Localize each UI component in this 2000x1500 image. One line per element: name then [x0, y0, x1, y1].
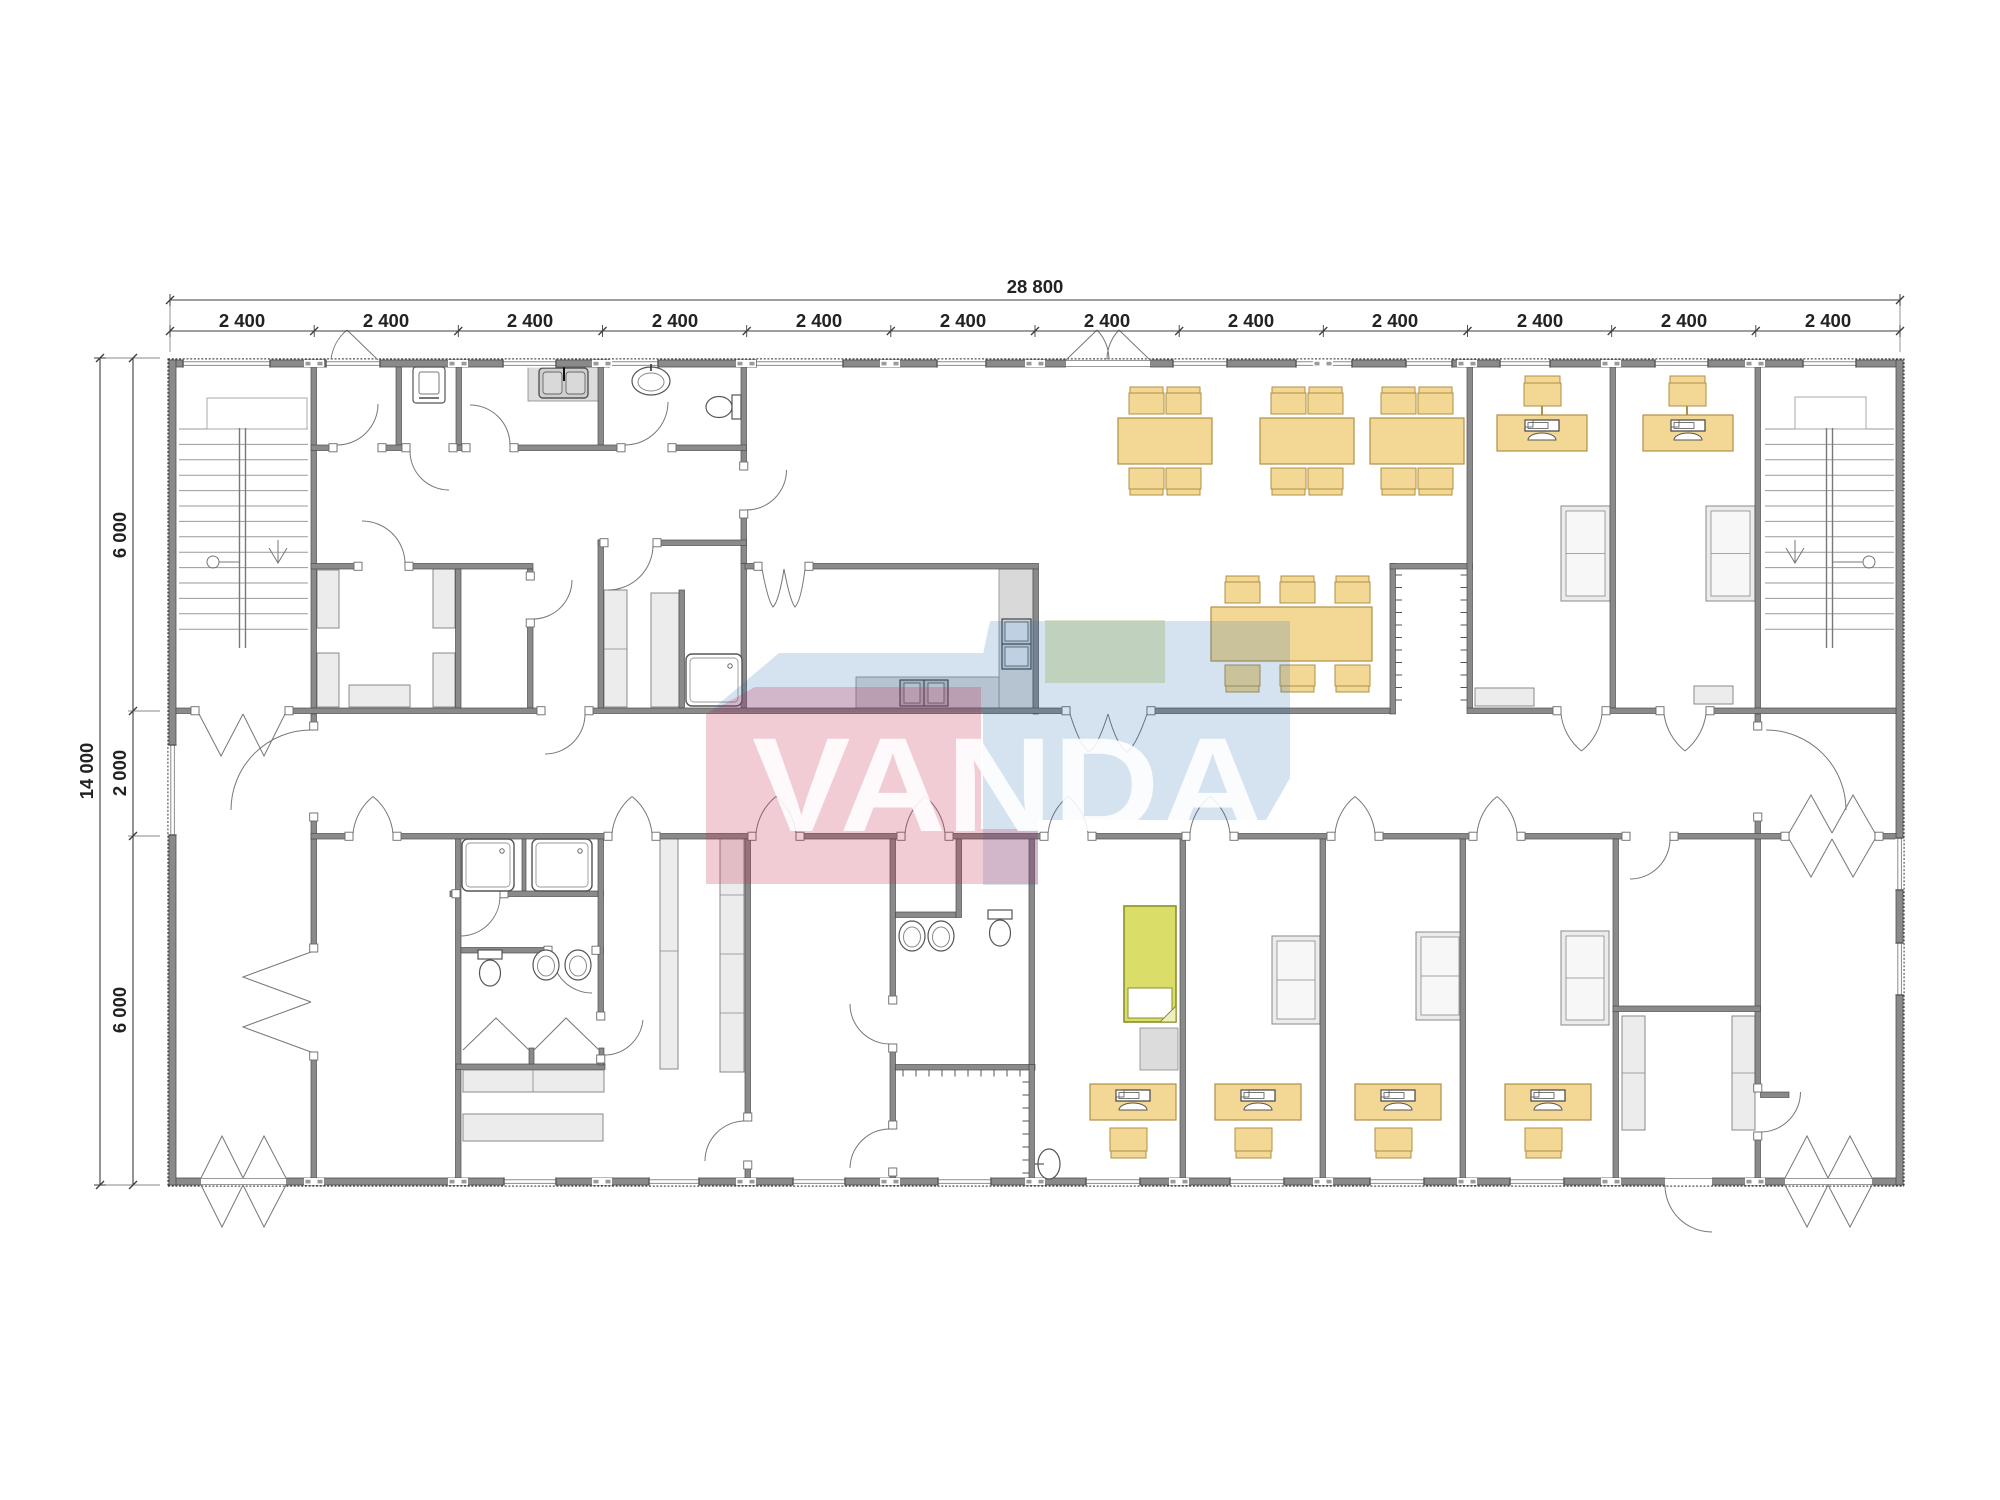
svg-text:2 400: 2 400 [1661, 310, 1707, 331]
svg-text:2 400: 2 400 [940, 310, 986, 331]
svg-text:2 400: 2 400 [1084, 310, 1130, 331]
svg-text:2 400: 2 400 [1805, 310, 1851, 331]
svg-text:2 000: 2 000 [109, 750, 130, 796]
svg-text:2 400: 2 400 [1372, 310, 1418, 331]
svg-text:2 400: 2 400 [363, 310, 409, 331]
svg-text:2 400: 2 400 [219, 310, 265, 331]
svg-text:2 400: 2 400 [796, 310, 842, 331]
svg-text:28 800: 28 800 [1007, 276, 1064, 297]
svg-text:2 400: 2 400 [1517, 310, 1563, 331]
svg-text:6 000: 6 000 [109, 987, 130, 1033]
svg-text:2 400: 2 400 [1228, 310, 1274, 331]
svg-text:2 400: 2 400 [652, 310, 698, 331]
svg-text:VANDA: VANDA [752, 711, 1266, 860]
svg-text:6 000: 6 000 [109, 512, 130, 558]
svg-text:14 000: 14 000 [76, 743, 97, 800]
svg-text:2 400: 2 400 [507, 310, 553, 331]
